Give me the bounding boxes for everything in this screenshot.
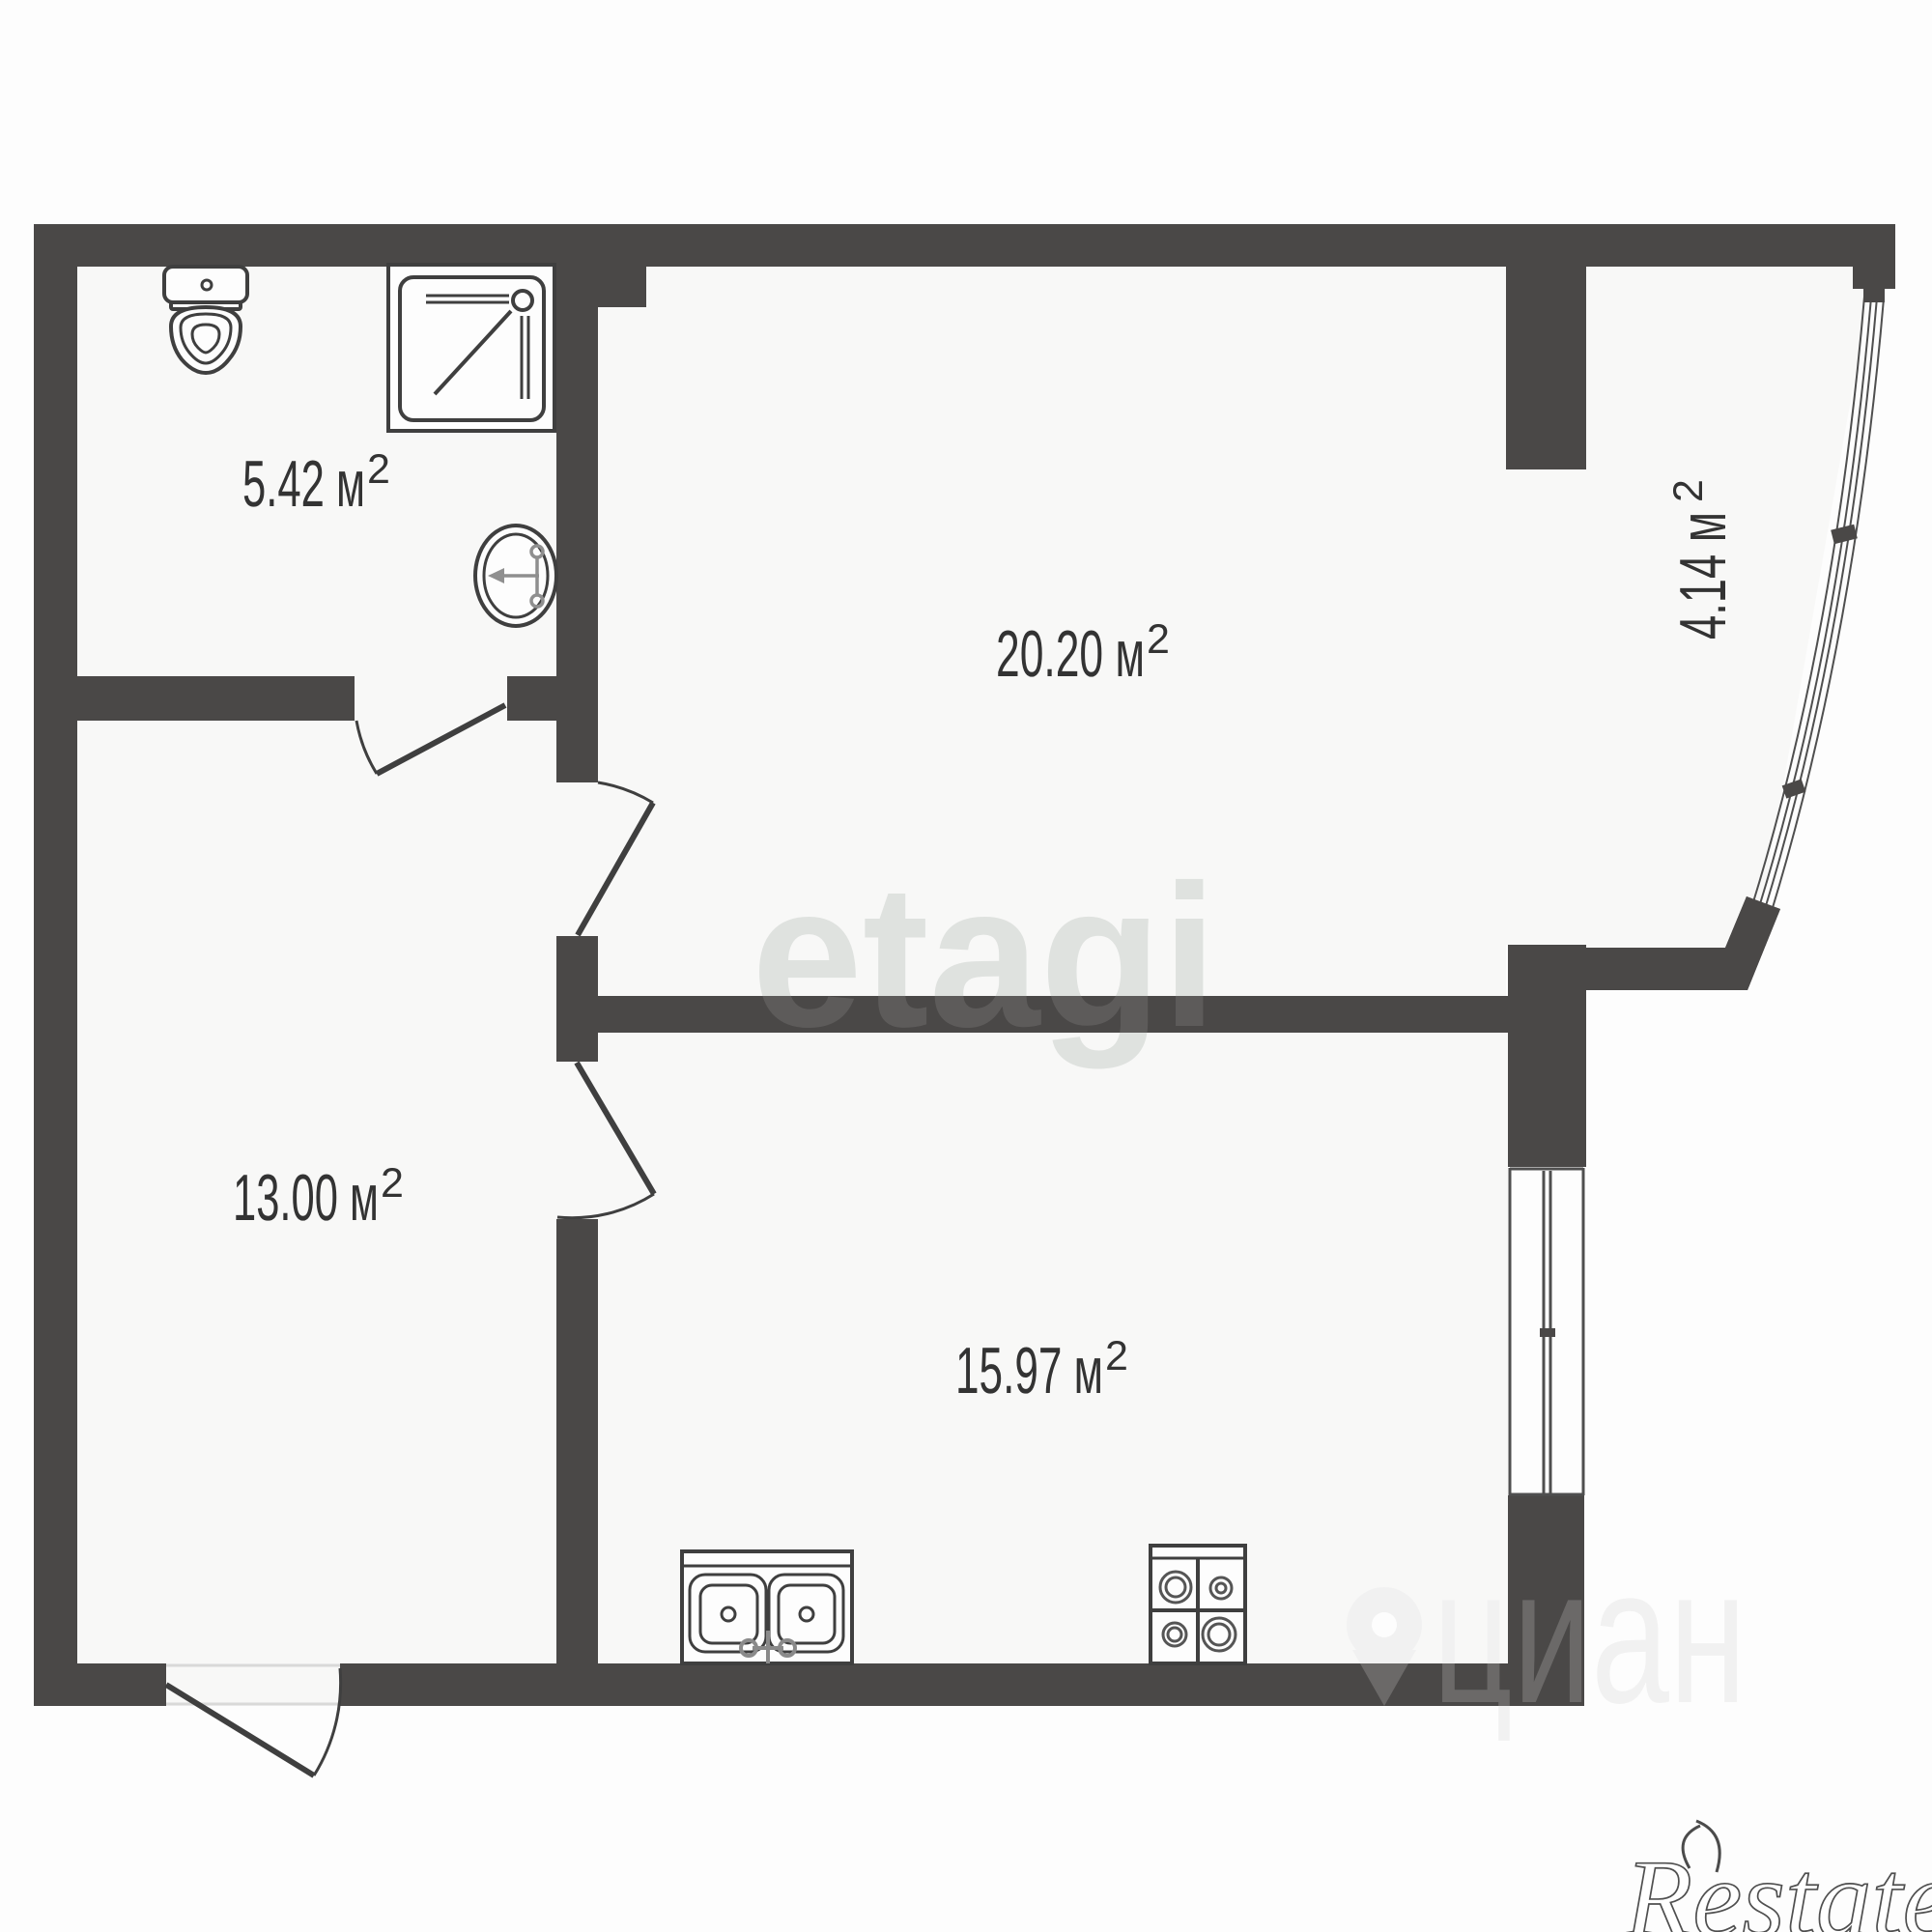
svg-text:15.97 м: 15.97 м [955, 1334, 1103, 1407]
svg-text:2: 2 [367, 446, 390, 493]
svg-text:2: 2 [1147, 616, 1170, 663]
svg-text:5.42 м: 5.42 м [242, 447, 365, 521]
svg-text:2: 2 [1665, 479, 1712, 502]
svg-text:20.20 м: 20.20 м [996, 617, 1145, 691]
svg-text:etagi: etagi [752, 842, 1217, 1069]
svg-text:циан: циан [1433, 1528, 1747, 1744]
svg-text:2: 2 [1105, 1333, 1128, 1379]
svg-text:13.00 м: 13.00 м [233, 1161, 379, 1235]
svg-text:2: 2 [381, 1160, 404, 1207]
svg-text:Restate: Restate [1624, 1837, 1932, 1932]
svg-text:4.14 м: 4.14 м [1666, 512, 1740, 639]
